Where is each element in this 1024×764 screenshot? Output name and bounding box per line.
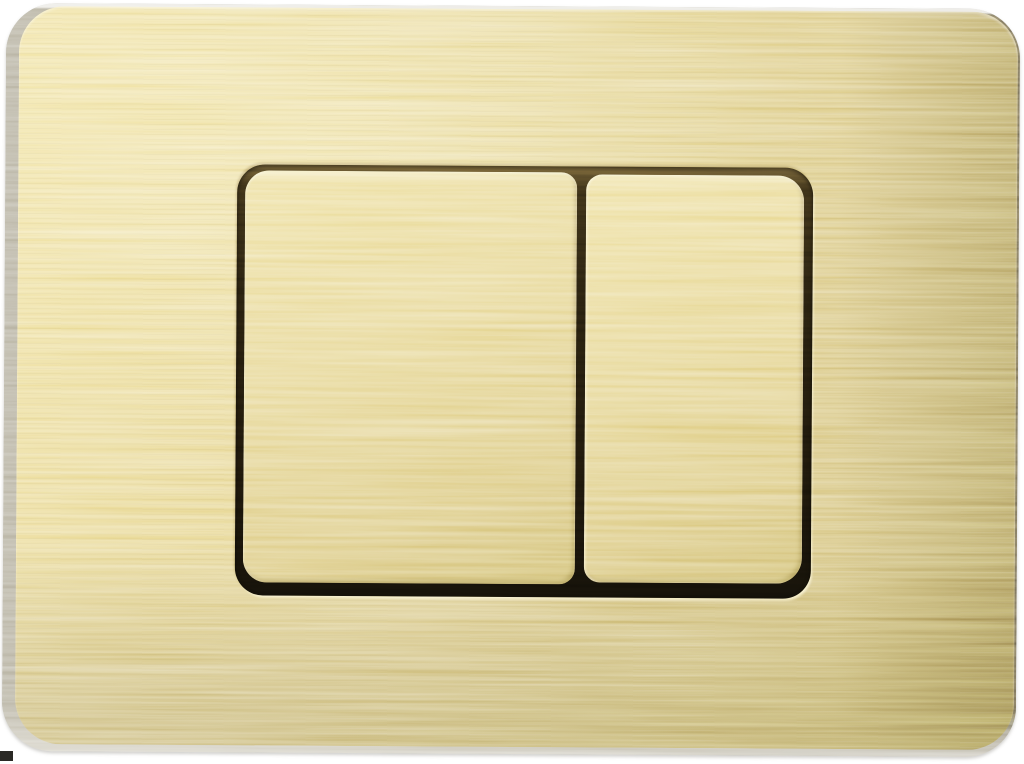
flush-plate <box>2 3 1021 757</box>
large-flush-button[interactable] <box>243 170 578 584</box>
product-photo <box>0 0 1024 764</box>
small-flush-button[interactable] <box>584 174 804 583</box>
plate-face <box>15 6 1018 750</box>
button-recess <box>235 164 814 599</box>
bottom-left-shadow-mark <box>0 751 13 761</box>
